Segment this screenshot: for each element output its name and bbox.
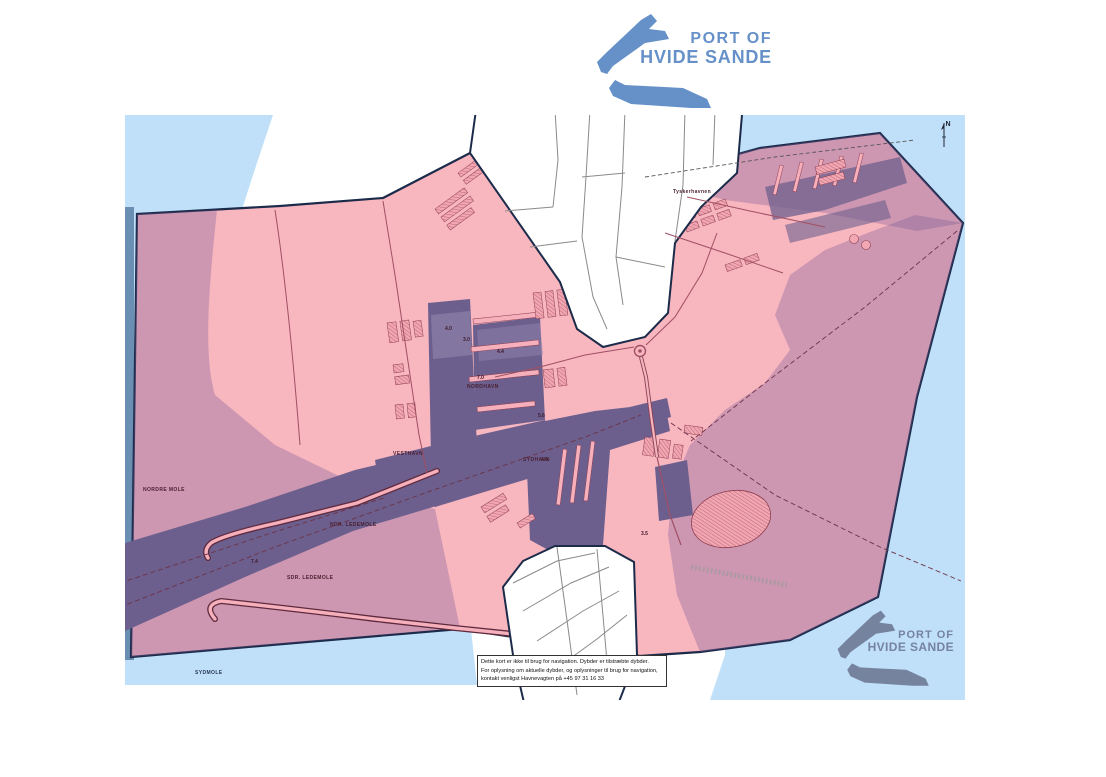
depth-label: 7.4 bbox=[251, 559, 258, 565]
disclaimer-line1: Dette kort er ikke til brug for navigati… bbox=[481, 658, 663, 667]
logo-top-line2: HVIDE SANDE bbox=[598, 48, 772, 68]
map-label-nordre-mole: NORDRE MOLE bbox=[143, 487, 185, 493]
logo-bottom-line2: HVIDE SANDE bbox=[842, 641, 954, 654]
map-label-ndr-ledemole: NDR. LEDEMOLE bbox=[330, 522, 377, 528]
port-logo-bottom: PORT OF HVIDE SANDE bbox=[842, 629, 954, 654]
map-label-nordhavn: NORDHAVN bbox=[467, 384, 499, 390]
north-indicator: N bbox=[939, 121, 957, 128]
depth-label: 3.0 bbox=[463, 337, 470, 343]
north-arrow-icon bbox=[939, 121, 949, 149]
map-label-vesthavn: VESTHAVN bbox=[393, 451, 423, 457]
disclaimer-line3: kontakt venligst Havnevagten på +45 97 3… bbox=[481, 675, 663, 684]
disclaimer-line2: For oplysning om aktuelle dybder, og opl… bbox=[481, 667, 663, 676]
depth-label: 4.0 bbox=[445, 326, 452, 332]
roundabout bbox=[635, 346, 646, 357]
map-label-tyskerhavnen: Tyskerhavnen bbox=[673, 189, 711, 195]
logo-top-line1: PORT OF bbox=[598, 30, 772, 48]
depth-label: 4.0 bbox=[541, 457, 548, 463]
port-logo-top: PORT OF HVIDE SANDE bbox=[598, 30, 772, 67]
disclaimer-box: Dette kort er ikke til brug for navigati… bbox=[477, 655, 667, 687]
depth-label: 5.6 bbox=[538, 413, 545, 419]
map-label-sdr-ledemole: SDR. LEDEMOLE bbox=[287, 575, 333, 581]
depth-label: 4.4 bbox=[497, 349, 504, 355]
depth-label: 3.5 bbox=[641, 531, 648, 537]
depth-label: 7.0 bbox=[477, 375, 484, 381]
page: PORT OF HVIDE SANDE bbox=[0, 0, 1106, 777]
map-label-sydmole: SYDMOLE bbox=[195, 670, 223, 676]
